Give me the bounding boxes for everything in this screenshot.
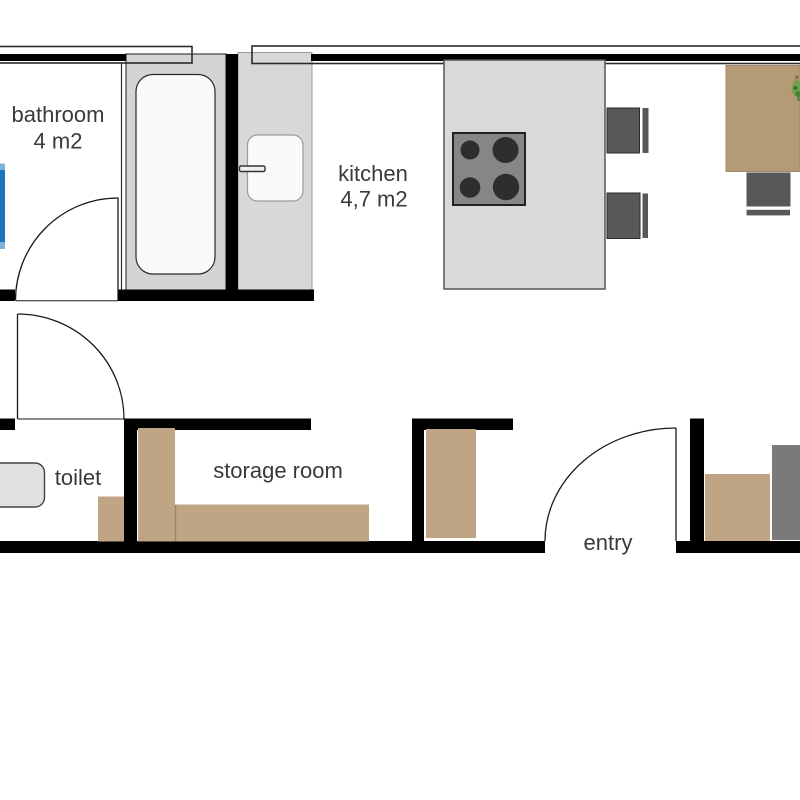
svg-text:4 m2: 4 m2	[34, 129, 83, 154]
svg-text:kitchen: kitchen	[338, 161, 408, 186]
svg-text:entry: entry	[584, 530, 633, 555]
svg-text:4,7 m2: 4,7 m2	[340, 187, 407, 212]
svg-text:storage room: storage room	[213, 458, 343, 483]
svg-text:bathroom: bathroom	[12, 102, 105, 127]
svg-text:toilet: toilet	[55, 465, 101, 490]
